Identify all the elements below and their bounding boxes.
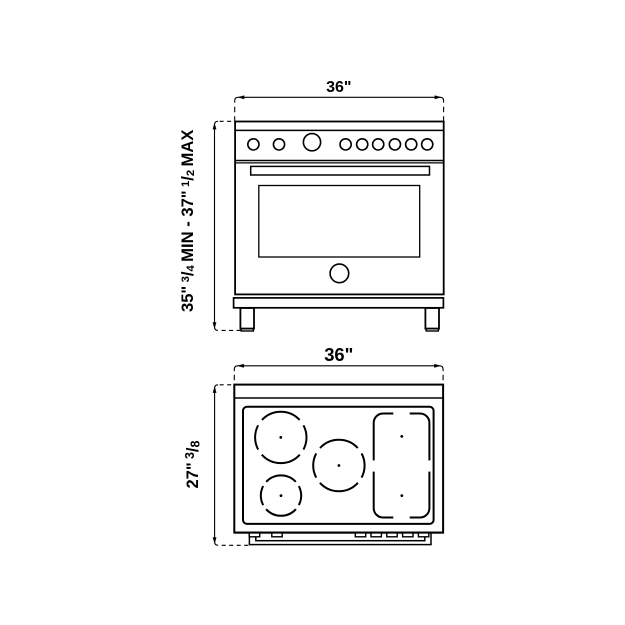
svg-text:35" 3/4 MIN - 37" 1/2 MAX: 35" 3/4 MIN - 37" 1/2 MAX: [178, 130, 197, 312]
svg-text:27" 3/8: 27" 3/8: [183, 440, 202, 488]
svg-text:36": 36": [324, 344, 353, 365]
svg-text:36": 36": [326, 79, 351, 96]
